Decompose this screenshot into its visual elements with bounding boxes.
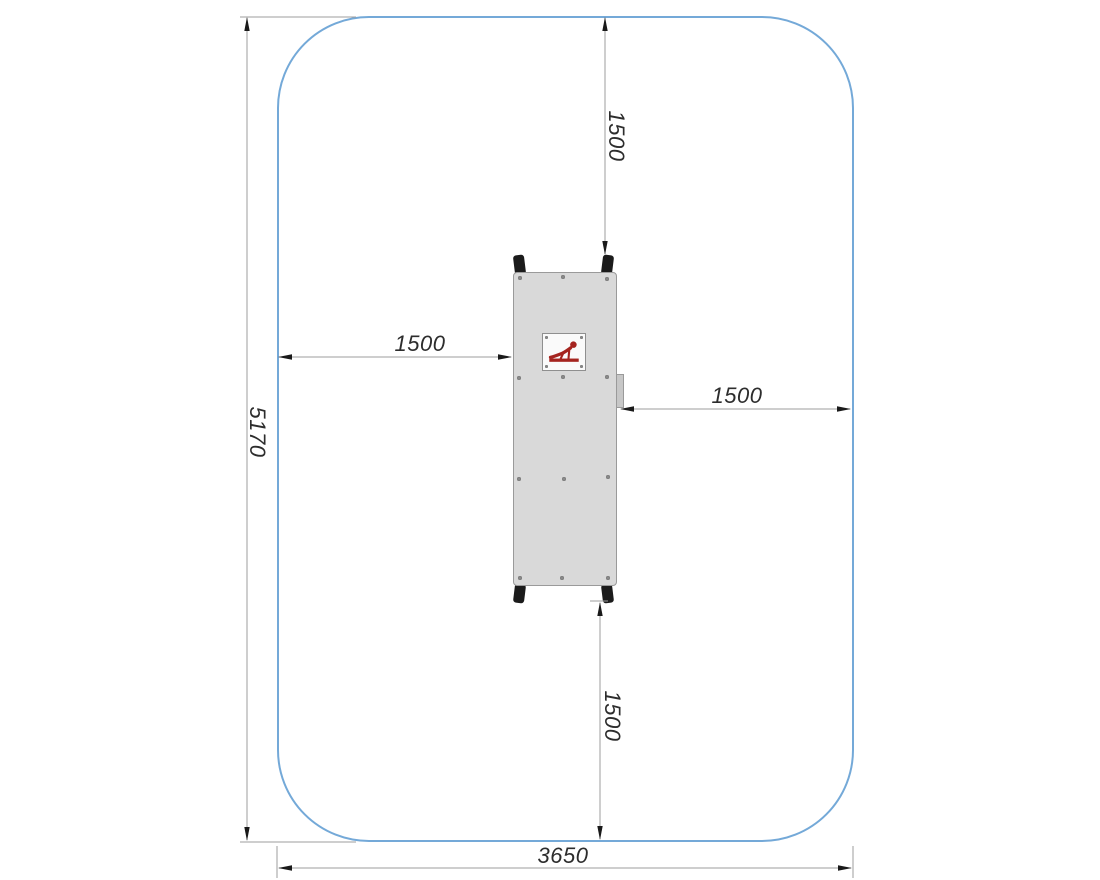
screw [545, 336, 548, 339]
dimension-label-overall-height: 5170 [244, 407, 270, 458]
screw [580, 336, 583, 339]
dimension-label-clearance-left: 1500 [395, 331, 446, 357]
screw [545, 365, 548, 368]
screw [562, 477, 566, 481]
screw [606, 576, 610, 580]
arrow-down-icon [244, 827, 249, 841]
equipment-deck [513, 272, 617, 586]
dimension-label-clearance-bottom: 1500 [599, 691, 625, 742]
dimension-label-overall-width: 3650 [538, 843, 589, 869]
arrow-left-icon [278, 865, 292, 870]
screw [606, 475, 610, 479]
screw [561, 375, 565, 379]
screw [517, 376, 521, 380]
dimension-label-clearance-right: 1500 [712, 383, 763, 409]
installation-drawing: 5170 1500 1500 1500 1500 3650 [0, 0, 1100, 880]
arrow-right-icon [838, 865, 852, 870]
equipment-post-bottom-right [601, 583, 614, 603]
screw [605, 375, 609, 379]
equipment-post-bottom-left [513, 583, 526, 603]
screw [518, 576, 522, 580]
push-up-figure-icon [546, 337, 582, 367]
screw [561, 275, 565, 279]
screw [560, 576, 564, 580]
screw [518, 276, 522, 280]
dimension-label-clearance-top: 1500 [603, 111, 629, 162]
screw [517, 477, 521, 481]
screw [605, 277, 609, 281]
screw [580, 365, 583, 368]
arrow-up-icon [244, 17, 249, 31]
instruction-plaque [542, 333, 586, 371]
